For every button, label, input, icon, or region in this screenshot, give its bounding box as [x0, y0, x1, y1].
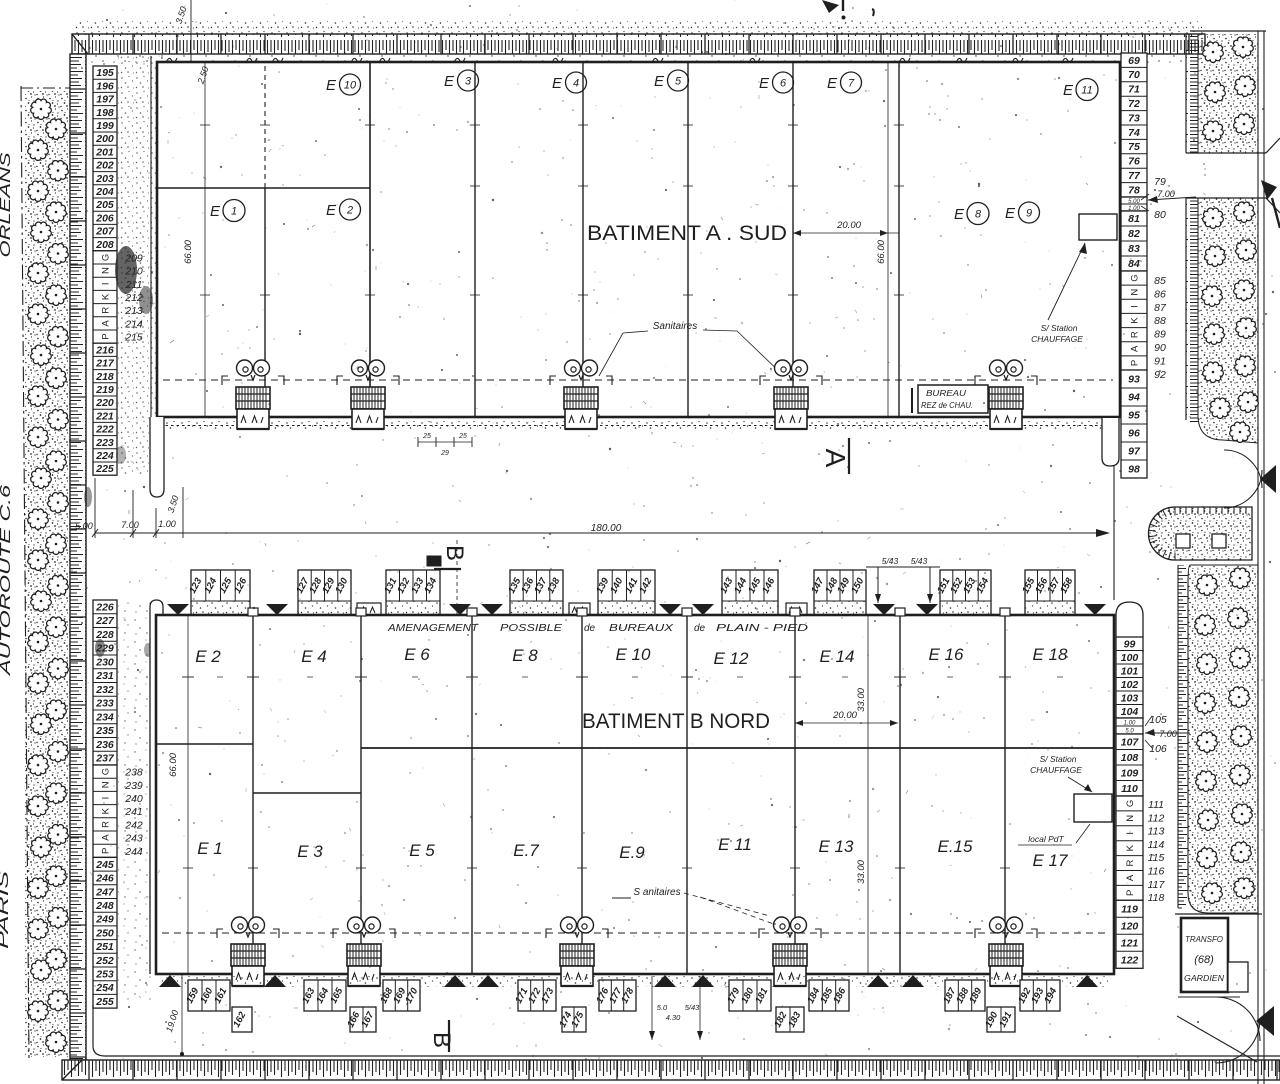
svg-text:117: 117 [1148, 879, 1166, 891]
svg-text:75: 75 [1128, 141, 1140, 153]
svg-text:217: 217 [95, 358, 115, 370]
svg-text:N: N [1125, 815, 1136, 822]
svg-text:7.00: 7.00 [121, 520, 139, 530]
svg-text:E: E [827, 75, 838, 92]
svg-text:66.00: 66.00 [168, 752, 179, 776]
svg-text:BATIMENT A . SUD: BATIMENT A . SUD [587, 222, 787, 245]
svg-text:96: 96 [1128, 428, 1140, 440]
svg-text:K: K [100, 807, 111, 814]
svg-text:E: E [954, 206, 965, 223]
svg-text:10: 10 [344, 80, 357, 92]
svg-text:N: N [100, 781, 111, 788]
svg-text:7.00: 7.00 [1159, 729, 1177, 739]
svg-text:2: 2 [346, 205, 353, 217]
svg-text:233: 233 [95, 698, 114, 710]
svg-text:118: 118 [1148, 892, 1165, 904]
svg-text:de: de [694, 623, 706, 634]
svg-text:BUREAUX: BUREAUX [609, 623, 673, 634]
svg-text:91: 91 [1154, 355, 1166, 367]
svg-text:5/43: 5/43 [911, 556, 928, 566]
svg-text:I: I [1129, 305, 1140, 308]
svg-text:105: 105 [1149, 714, 1167, 726]
svg-text:N: N [100, 267, 111, 274]
svg-text:222: 222 [95, 424, 114, 436]
svg-text:R: R [1125, 859, 1136, 866]
svg-text:245: 245 [95, 859, 114, 871]
svg-text:103: 103 [1121, 692, 1139, 704]
svg-text:200: 200 [95, 133, 114, 145]
svg-text:93: 93 [1128, 374, 1140, 386]
svg-text:20.00: 20.00 [836, 220, 861, 231]
svg-text:230: 230 [95, 656, 114, 668]
svg-text:E.15: E.15 [938, 837, 974, 856]
svg-text:112: 112 [1148, 812, 1165, 824]
svg-text:109: 109 [1121, 767, 1139, 779]
svg-text:207: 207 [95, 226, 115, 238]
svg-text:REZ de CHAU.: REZ de CHAU. [921, 401, 973, 410]
svg-text:85: 85 [1154, 275, 1166, 287]
svg-text:119: 119 [1121, 903, 1138, 915]
svg-text:201: 201 [95, 146, 114, 158]
svg-text:AMENAGEMENT: AMENAGEMENT [387, 623, 479, 634]
svg-text:E.7: E.7 [513, 841, 539, 860]
svg-text:104: 104 [1121, 706, 1139, 718]
svg-text:E 3: E 3 [297, 842, 323, 861]
svg-text:94: 94 [1128, 392, 1140, 404]
svg-text:E 14: E 14 [820, 647, 855, 666]
svg-text:253: 253 [95, 968, 114, 980]
svg-text:235: 235 [95, 725, 114, 737]
svg-text:E 4: E 4 [301, 647, 327, 666]
svg-text:111: 111 [1148, 799, 1164, 811]
svg-text:250: 250 [95, 927, 114, 939]
svg-text:(68): (68) [1194, 954, 1214, 966]
svg-text:B: B [441, 545, 468, 561]
svg-text:E 16: E 16 [929, 645, 965, 664]
svg-text:81: 81 [1128, 213, 1140, 225]
svg-text:237: 237 [95, 753, 115, 765]
svg-text:82: 82 [1128, 228, 1140, 240]
svg-text:E 2: E 2 [195, 647, 221, 666]
svg-text:A: A [1129, 345, 1140, 352]
svg-text:TRANSFO: TRANSFO [1185, 935, 1223, 944]
svg-text:E 6: E 6 [404, 645, 430, 664]
svg-text:G: G [1129, 274, 1140, 281]
svg-text:ORLEANS: ORLEANS [0, 152, 14, 257]
svg-text:1.00: 1.00 [1124, 721, 1136, 727]
svg-text:208: 208 [95, 239, 114, 251]
svg-text:86: 86 [1154, 288, 1166, 300]
svg-text:AUTOROUTE C.6: AUTOROUTE C.6 [0, 483, 14, 676]
svg-text:Sanitaires: Sanitaires [653, 321, 697, 332]
svg-text:249: 249 [95, 914, 114, 926]
svg-text:9: 9 [1026, 208, 1032, 220]
svg-text:199: 199 [96, 120, 114, 132]
svg-text:5.00: 5.00 [1128, 199, 1140, 205]
svg-text:I: I [100, 282, 111, 285]
svg-text:5.00: 5.00 [75, 521, 93, 531]
svg-text:PLAIN - PIED: PLAIN - PIED [716, 623, 808, 634]
svg-text:5/43: 5/43 [882, 556, 899, 566]
svg-text:203: 203 [95, 173, 114, 185]
svg-text:25: 25 [458, 433, 467, 440]
svg-text:232: 232 [95, 684, 114, 696]
svg-text:P: P [1129, 360, 1140, 366]
svg-text:110: 110 [1121, 783, 1138, 795]
svg-text:K: K [1125, 844, 1136, 851]
svg-text:76: 76 [1128, 156, 1140, 168]
svg-text:98: 98 [1128, 464, 1140, 476]
svg-text:25: 25 [422, 433, 431, 440]
svg-text:231: 231 [95, 670, 114, 682]
svg-text:7: 7 [848, 78, 855, 90]
svg-text:E: E [210, 203, 221, 220]
svg-text:E 5: E 5 [409, 841, 435, 860]
svg-text:77: 77 [1128, 170, 1141, 182]
svg-text:66.00: 66.00 [183, 239, 194, 263]
svg-text:236: 236 [95, 739, 114, 751]
svg-text:E 12: E 12 [714, 649, 750, 668]
svg-text:4: 4 [573, 78, 579, 90]
svg-text:E: E [654, 73, 665, 90]
svg-text:1.00: 1.00 [158, 519, 176, 529]
svg-text:73: 73 [1128, 112, 1140, 124]
svg-text:102: 102 [1121, 679, 1139, 691]
svg-text:87: 87 [1154, 302, 1167, 314]
svg-text:227: 227 [95, 615, 115, 627]
svg-text:S/ Station: S/ Station [1040, 754, 1077, 764]
svg-text:CHAUFFAGE: CHAUFFAGE [1030, 765, 1082, 775]
svg-text:33.00: 33.00 [856, 687, 867, 711]
svg-text:E: E [759, 75, 770, 92]
svg-text:84: 84 [1128, 258, 1140, 270]
svg-text:GARDIEN: GARDIEN [1184, 974, 1224, 983]
svg-text:79: 79 [1154, 176, 1166, 188]
svg-text:88: 88 [1154, 315, 1166, 327]
svg-text:219: 219 [95, 384, 114, 396]
svg-text:101: 101 [1121, 665, 1139, 677]
svg-text:K: K [100, 293, 111, 300]
svg-text:70: 70 [1128, 69, 1140, 81]
svg-text:254: 254 [95, 982, 114, 994]
svg-text:83: 83 [1128, 243, 1140, 255]
svg-text:29: 29 [440, 450, 449, 457]
svg-text:197: 197 [96, 94, 115, 106]
svg-text:4.30: 4.30 [666, 1013, 681, 1022]
svg-text:E: E [326, 77, 337, 94]
svg-text:POSSIBLE: POSSIBLE [500, 623, 562, 634]
svg-text:97: 97 [1128, 446, 1141, 458]
svg-text:66.00: 66.00 [876, 239, 887, 263]
svg-text:R: R [100, 307, 111, 314]
svg-text:204: 204 [95, 186, 114, 198]
svg-text:S/ Station: S/ Station [1041, 323, 1078, 333]
svg-text:108: 108 [1121, 752, 1139, 764]
svg-text:224: 224 [95, 450, 114, 462]
svg-text:80: 80 [1154, 209, 1166, 221]
svg-text:R: R [1129, 331, 1140, 338]
svg-text:255: 255 [95, 996, 114, 1008]
svg-text:72: 72 [1128, 98, 1140, 110]
svg-text:6: 6 [780, 78, 787, 90]
svg-text:E 8: E 8 [512, 646, 538, 665]
svg-text:196: 196 [96, 80, 114, 92]
svg-text:114: 114 [1148, 839, 1165, 851]
svg-text:206: 206 [95, 212, 114, 224]
svg-text:122: 122 [1121, 954, 1139, 966]
svg-text:113: 113 [1148, 826, 1165, 838]
svg-text:S anitaires: S anitaires [633, 887, 680, 898]
svg-text:E.9: E.9 [619, 843, 645, 862]
svg-text:71: 71 [1128, 84, 1140, 96]
svg-text:E: E [552, 75, 563, 92]
svg-text:E: E [1005, 205, 1016, 222]
svg-text:246: 246 [95, 873, 114, 885]
svg-text:107: 107 [1121, 736, 1140, 748]
svg-text:218: 218 [95, 371, 114, 383]
svg-text:202: 202 [95, 160, 114, 172]
svg-text:P: P [100, 848, 111, 854]
svg-text:221: 221 [95, 410, 114, 422]
svg-text:E 17: E 17 [1033, 851, 1069, 870]
svg-text:local PdT: local PdT [1028, 834, 1064, 844]
svg-text:226: 226 [95, 601, 114, 613]
svg-text:5.0: 5.0 [657, 1003, 668, 1012]
svg-text:195: 195 [96, 67, 114, 79]
svg-text:99: 99 [1124, 638, 1136, 650]
svg-text:69: 69 [1128, 55, 1140, 67]
svg-text:33.00: 33.00 [856, 859, 867, 883]
svg-text:G: G [100, 768, 111, 775]
svg-text:225: 225 [95, 463, 114, 475]
svg-text:252: 252 [95, 955, 114, 967]
svg-text:A: A [1125, 874, 1136, 881]
svg-text:I: I [100, 797, 111, 800]
svg-text:E: E [444, 73, 455, 90]
svg-text:100: 100 [1121, 652, 1139, 664]
svg-text:205: 205 [95, 199, 114, 211]
svg-text:G: G [100, 254, 111, 261]
svg-text:8: 8 [975, 209, 982, 221]
svg-text:N: N [1129, 289, 1140, 296]
svg-text:198: 198 [96, 107, 114, 119]
svg-text:251: 251 [95, 941, 114, 953]
svg-text:B: B [428, 1032, 455, 1048]
svg-text:PARIS: PARIS [0, 870, 12, 949]
svg-text:R: R [100, 821, 111, 828]
svg-text:247: 247 [95, 886, 115, 898]
svg-text:78: 78 [1128, 184, 1140, 196]
svg-text:11: 11 [1081, 85, 1092, 97]
svg-text:E: E [1063, 82, 1074, 99]
svg-text:P: P [100, 333, 111, 339]
svg-text:E 1: E 1 [197, 839, 223, 858]
svg-text:A: A [100, 320, 111, 327]
svg-text:20.00: 20.00 [832, 710, 857, 721]
svg-text:220: 220 [95, 397, 114, 409]
svg-text:A: A [820, 449, 851, 468]
svg-text:121: 121 [1121, 937, 1139, 949]
svg-text:BATIMENT B NORD: BATIMENT B NORD [582, 710, 770, 733]
svg-text:CHAUFFAGE: CHAUFFAGE [1031, 334, 1083, 344]
svg-text:P: P [1125, 890, 1136, 896]
svg-text:120: 120 [1121, 920, 1139, 932]
svg-text:E 11: E 11 [718, 835, 752, 854]
svg-text:5/43: 5/43 [685, 1003, 700, 1012]
svg-text:116: 116 [1148, 866, 1165, 878]
svg-text:E 10: E 10 [616, 645, 652, 664]
svg-text:BUREAU: BUREAU [926, 388, 967, 398]
svg-text:1: 1 [231, 206, 237, 218]
svg-text:216: 216 [95, 344, 114, 356]
svg-text:74: 74 [1128, 127, 1140, 139]
svg-text:248: 248 [95, 900, 114, 912]
svg-text:95: 95 [1128, 410, 1140, 422]
svg-text:G: G [1125, 800, 1136, 807]
svg-text:A: A [100, 834, 111, 841]
svg-text:106: 106 [1149, 743, 1167, 755]
svg-text:K: K [1129, 317, 1140, 324]
svg-text:180.00: 180.00 [591, 523, 622, 534]
svg-text:7.00: 7.00 [1157, 189, 1175, 199]
svg-text:89: 89 [1154, 329, 1166, 341]
svg-text:5: 5 [675, 76, 682, 88]
svg-text:234: 234 [95, 711, 114, 723]
svg-text:228: 228 [95, 629, 114, 641]
svg-text:3: 3 [465, 76, 472, 88]
svg-text:E 13: E 13 [819, 837, 855, 856]
svg-text:de: de [584, 623, 596, 634]
svg-text:223: 223 [95, 437, 114, 449]
svg-text:90: 90 [1154, 342, 1166, 354]
svg-text:115: 115 [1148, 852, 1165, 864]
